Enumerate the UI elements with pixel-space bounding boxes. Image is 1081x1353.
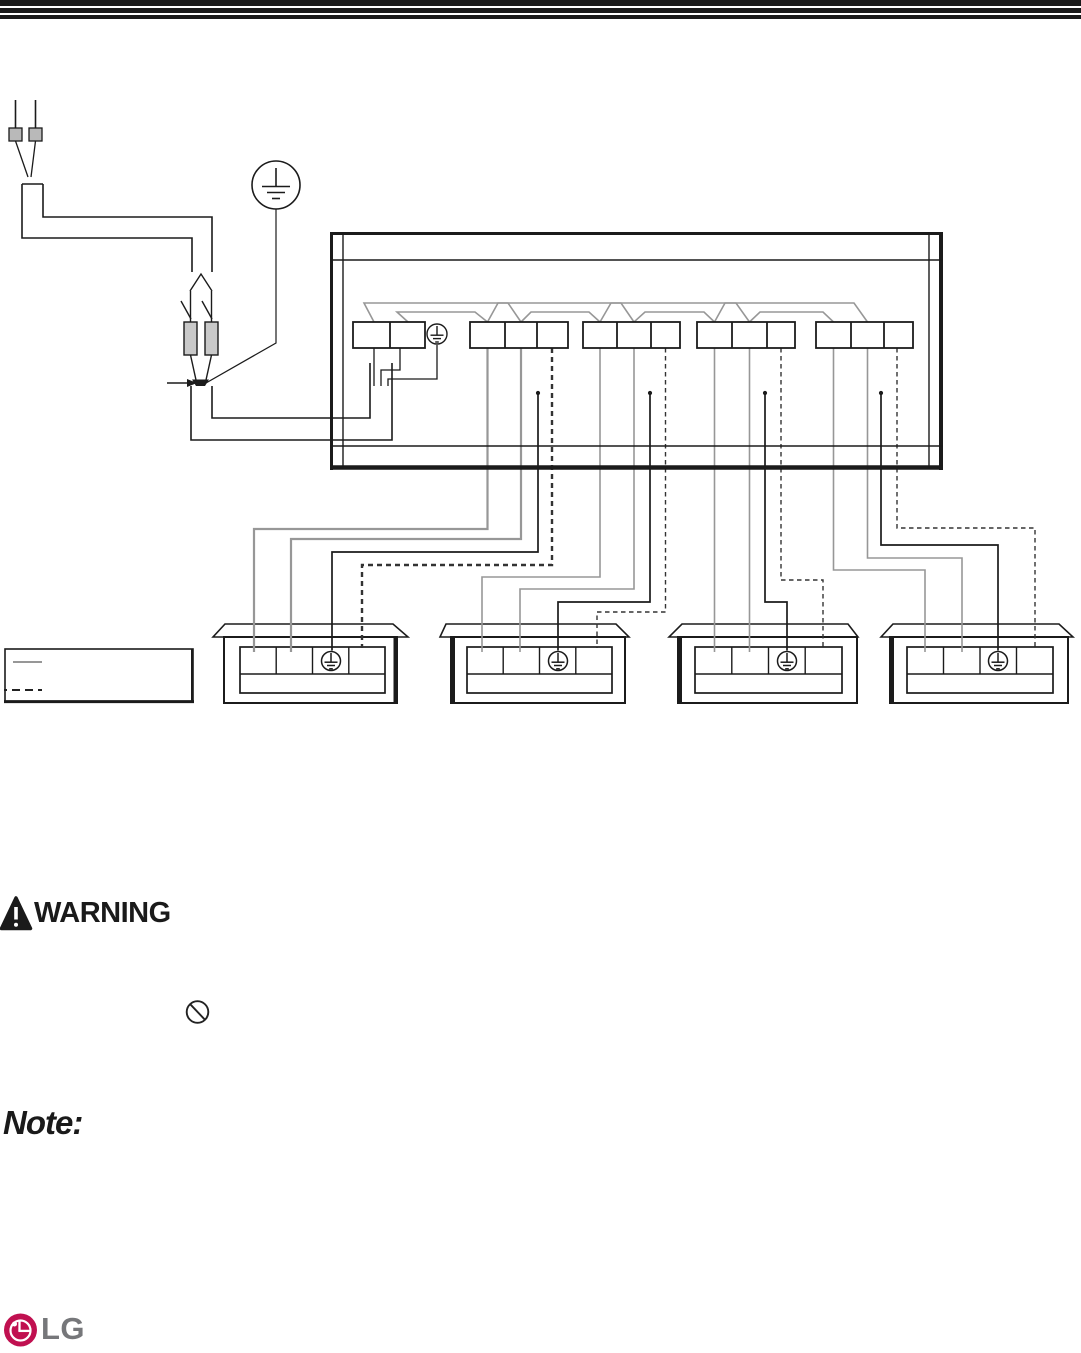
indoor-unit-roof xyxy=(440,624,629,637)
warning-title: WARNING xyxy=(34,897,171,930)
fuse xyxy=(184,322,197,355)
terminal-group-4 xyxy=(816,322,913,348)
indoor-unit-wiring-gray xyxy=(254,348,962,652)
indoor-unit-1 xyxy=(213,624,408,703)
fuse xyxy=(205,322,218,355)
power-terminal-fanout xyxy=(374,345,437,386)
note-label: Note: xyxy=(3,1104,82,1142)
earth-wire xyxy=(206,209,276,383)
terminal-group-1 xyxy=(470,322,568,348)
power-plug-terminal xyxy=(9,128,22,141)
indoor-unit-roof xyxy=(881,624,1073,637)
outdoor-unit-box xyxy=(330,232,943,470)
ground-icon xyxy=(549,652,568,671)
ground-icon xyxy=(989,652,1008,671)
ground-icon xyxy=(427,324,447,344)
legend-box xyxy=(4,649,194,702)
protective-earth-icon xyxy=(252,161,300,209)
manual-page: WARNING Note: LG xyxy=(0,0,1081,1353)
warning-triangle-icon xyxy=(2,898,31,929)
switch-blade-icon xyxy=(181,301,191,319)
indoor-unit-roof xyxy=(669,624,858,637)
switch-blade-icon xyxy=(202,301,212,319)
power-terminal-block xyxy=(353,322,425,348)
indoor-unit-roof xyxy=(213,624,408,637)
terminal-group-3 xyxy=(697,322,795,348)
terminal-group-2 xyxy=(583,322,680,348)
ground-icon xyxy=(322,652,341,671)
terminal-jumper-wires xyxy=(364,303,868,322)
lg-logo-text: LG xyxy=(41,1311,85,1347)
indoor-unit-4 xyxy=(881,624,1073,703)
indoor-unit-2 xyxy=(440,624,629,703)
power-plug-terminal xyxy=(29,128,42,141)
power-supply-assembly xyxy=(9,100,437,440)
lg-logo-icon xyxy=(4,1314,37,1347)
prohibition-icon xyxy=(187,1001,209,1023)
wiring-diagram xyxy=(0,0,1081,1353)
indoor-units xyxy=(213,624,1073,703)
ground-icon xyxy=(778,652,797,671)
indoor-unit-dashed-wires xyxy=(362,348,1035,648)
indoor-unit-3 xyxy=(669,624,858,703)
power-cable-conduit xyxy=(22,184,212,322)
